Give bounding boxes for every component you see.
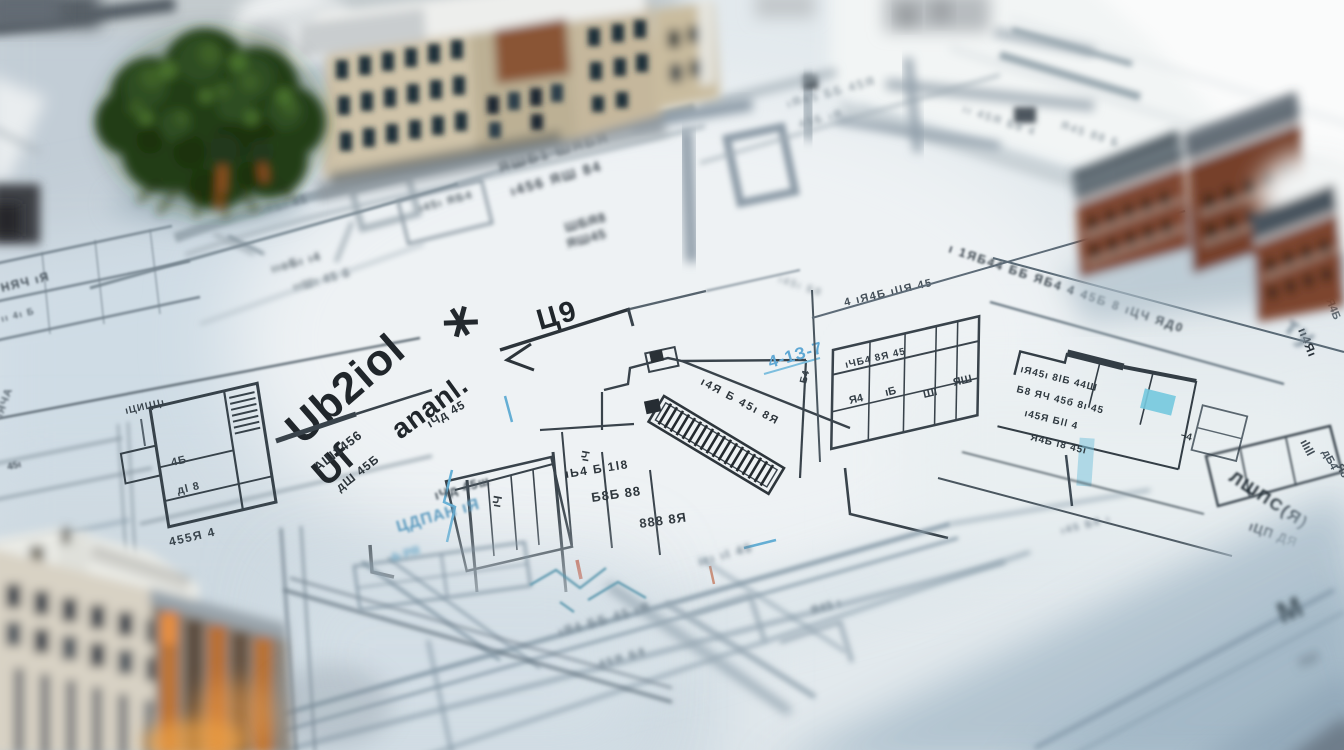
svg-text:ıЧ: ıЧ [489,495,505,509]
svg-text:ıЧ: ıЧ [579,450,593,463]
